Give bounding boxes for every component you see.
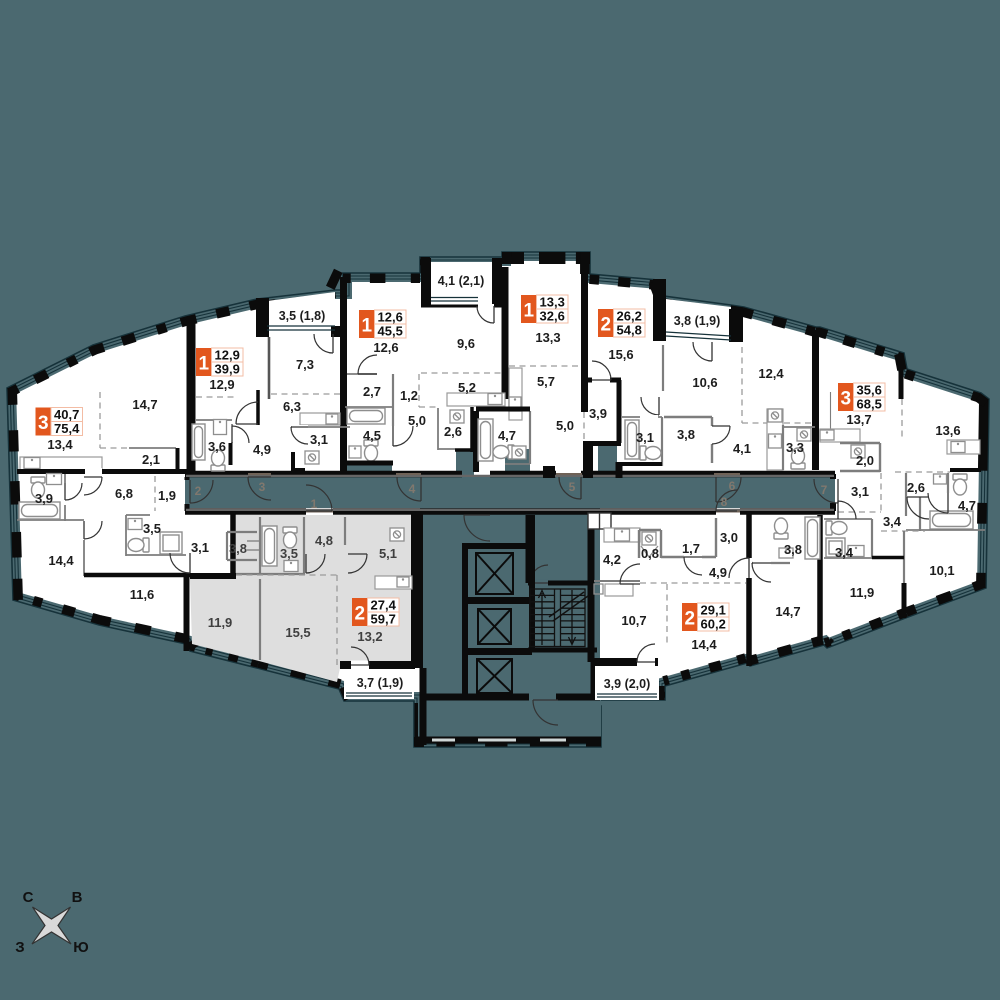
svg-text:1: 1	[311, 497, 318, 511]
svg-text:5,0: 5,0	[408, 413, 426, 428]
svg-text:54,8: 54,8	[617, 323, 642, 338]
svg-text:1: 1	[362, 316, 373, 337]
svg-text:2,6: 2,6	[444, 424, 462, 439]
svg-text:1: 1	[199, 354, 210, 375]
svg-text:2: 2	[355, 604, 366, 625]
svg-text:13,3: 13,3	[540, 295, 565, 310]
svg-text:3,4: 3,4	[835, 545, 854, 560]
svg-text:3,5: 3,5	[143, 521, 161, 536]
svg-text:14,7: 14,7	[132, 397, 157, 412]
svg-text:12,6: 12,6	[373, 340, 398, 355]
svg-text:1,7: 1,7	[682, 541, 700, 556]
svg-text:1,9: 1,9	[158, 488, 176, 503]
svg-text:Ю: Ю	[73, 939, 88, 956]
svg-text:13,3: 13,3	[535, 330, 560, 345]
svg-text:С: С	[23, 889, 34, 906]
svg-text:4,7: 4,7	[498, 428, 516, 443]
svg-text:4,1 (2,1): 4,1 (2,1)	[438, 274, 485, 288]
svg-text:27,4: 27,4	[371, 598, 397, 613]
svg-text:З: З	[15, 939, 24, 956]
svg-text:14,4: 14,4	[691, 637, 717, 652]
svg-text:2: 2	[685, 609, 696, 630]
svg-text:7: 7	[821, 483, 828, 497]
svg-text:26,2: 26,2	[617, 309, 642, 324]
svg-text:40,7: 40,7	[54, 407, 79, 422]
svg-text:3,8: 3,8	[229, 541, 247, 556]
svg-text:9,6: 9,6	[457, 336, 475, 351]
svg-text:4: 4	[409, 482, 416, 496]
svg-text:3,6: 3,6	[208, 439, 226, 454]
svg-text:12,9: 12,9	[215, 348, 240, 363]
svg-text:3,1: 3,1	[191, 540, 209, 555]
svg-text:35,6: 35,6	[857, 383, 882, 398]
svg-text:3,9: 3,9	[35, 491, 53, 506]
svg-text:10,1: 10,1	[929, 563, 954, 578]
svg-text:15,5: 15,5	[285, 625, 310, 640]
svg-text:13,6: 13,6	[935, 423, 960, 438]
svg-text:6,8: 6,8	[115, 486, 133, 501]
svg-text:2,6: 2,6	[907, 480, 925, 495]
svg-text:45,5: 45,5	[378, 324, 403, 339]
svg-text:10,7: 10,7	[621, 613, 646, 628]
svg-text:3: 3	[841, 389, 852, 410]
svg-text:3,9 (2,0): 3,9 (2,0)	[604, 677, 651, 691]
svg-text:3,5 (1,8): 3,5 (1,8)	[279, 309, 326, 323]
svg-text:4,8: 4,8	[315, 533, 333, 548]
svg-text:15,6: 15,6	[608, 347, 633, 362]
svg-text:2,7: 2,7	[363, 384, 381, 399]
svg-text:4,1: 4,1	[733, 441, 751, 456]
svg-text:3: 3	[259, 480, 266, 494]
svg-text:60,2: 60,2	[701, 617, 726, 632]
svg-text:59,7: 59,7	[371, 612, 396, 627]
svg-text:3,3: 3,3	[786, 440, 804, 455]
svg-text:3: 3	[38, 413, 49, 434]
svg-text:3,5: 3,5	[280, 546, 298, 561]
svg-text:2: 2	[195, 484, 202, 498]
svg-text:В: В	[72, 889, 83, 906]
svg-text:6,3: 6,3	[283, 399, 301, 414]
svg-text:11,6: 11,6	[130, 587, 155, 602]
svg-text:39,9: 39,9	[215, 362, 240, 377]
svg-text:3,8 (1,9): 3,8 (1,9)	[674, 314, 721, 328]
svg-text:3,1: 3,1	[851, 484, 869, 499]
svg-text:5,0: 5,0	[556, 418, 574, 433]
svg-text:5,7: 5,7	[537, 374, 555, 389]
svg-text:0,8: 0,8	[641, 546, 659, 561]
svg-text:14,4: 14,4	[48, 553, 74, 568]
svg-text:75,4: 75,4	[54, 421, 80, 436]
svg-text:12,4: 12,4	[758, 366, 784, 381]
svg-text:10,6: 10,6	[692, 375, 717, 390]
svg-text:13,2: 13,2	[357, 629, 382, 644]
svg-text:6: 6	[729, 479, 736, 493]
svg-text:12,6: 12,6	[378, 310, 403, 325]
svg-text:3,4: 3,4	[883, 514, 902, 529]
svg-text:2,0: 2,0	[856, 453, 874, 468]
svg-text:4,9: 4,9	[709, 565, 727, 580]
svg-text:1: 1	[524, 301, 535, 322]
svg-text:12,9: 12,9	[209, 377, 234, 392]
svg-text:1,2: 1,2	[400, 388, 418, 403]
svg-text:14,7: 14,7	[775, 604, 800, 619]
svg-text:11,9: 11,9	[208, 615, 233, 630]
svg-text:4,9: 4,9	[253, 442, 271, 457]
svg-text:2: 2	[601, 315, 612, 336]
svg-text:13,7: 13,7	[846, 412, 871, 427]
svg-text:32,6: 32,6	[540, 309, 565, 324]
svg-text:5,1: 5,1	[379, 546, 397, 561]
svg-text:3,0: 3,0	[720, 530, 738, 545]
svg-text:4,2: 4,2	[603, 552, 621, 567]
svg-text:3,8: 3,8	[677, 427, 695, 442]
svg-text:8: 8	[721, 495, 728, 509]
svg-text:68,5: 68,5	[857, 397, 882, 412]
svg-text:13,4: 13,4	[47, 437, 73, 452]
svg-text:3,1: 3,1	[310, 432, 328, 447]
svg-text:3,7 (1,9): 3,7 (1,9)	[357, 676, 404, 690]
svg-text:29,1: 29,1	[701, 603, 726, 618]
svg-text:3,9: 3,9	[589, 406, 607, 421]
svg-text:4,7: 4,7	[958, 498, 976, 513]
svg-text:7,3: 7,3	[296, 357, 314, 372]
svg-text:5,2: 5,2	[458, 380, 476, 395]
svg-text:11,9: 11,9	[850, 585, 875, 600]
svg-text:3,8: 3,8	[784, 542, 802, 557]
svg-text:2,1: 2,1	[142, 452, 160, 467]
svg-text:3,1: 3,1	[636, 430, 654, 445]
svg-text:4,5: 4,5	[363, 428, 381, 443]
svg-text:5: 5	[569, 480, 576, 494]
